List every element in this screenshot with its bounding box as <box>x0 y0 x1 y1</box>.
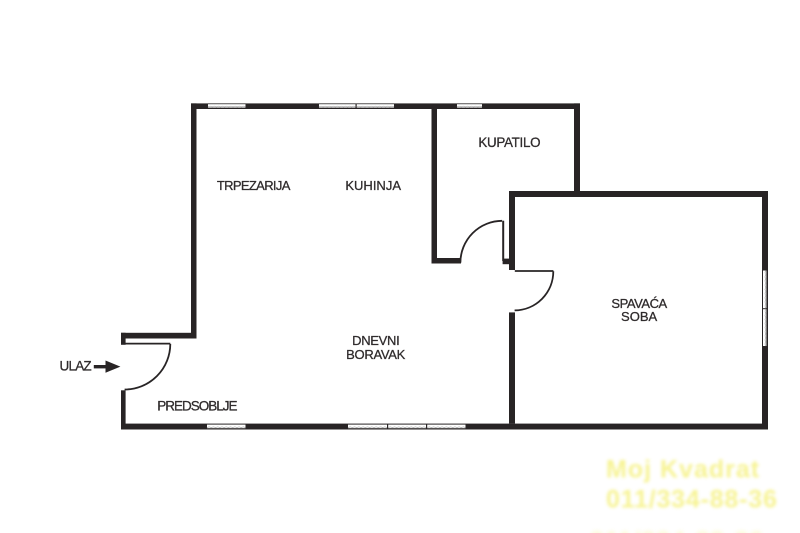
svg-text:KUPATILO: KUPATILO <box>478 135 540 150</box>
svg-text:Moj Kvadrat: Moj Kvadrat <box>606 456 760 484</box>
svg-text:011/334-88-36: 011/334-88-36 <box>606 486 778 514</box>
svg-text:KUHINJA: KUHINJA <box>345 178 401 193</box>
svg-text:TRPEZARIJA: TRPEZARIJA <box>217 178 291 193</box>
svg-text:SOBA: SOBA <box>621 309 657 324</box>
svg-text:DNEVNI: DNEVNI <box>352 333 399 348</box>
svg-text:PREDSOBLJE: PREDSOBLJE <box>157 399 237 414</box>
svg-text:ULAZ: ULAZ <box>60 359 92 374</box>
svg-text:011/334-88-36: 011/334-88-36 <box>590 527 764 533</box>
svg-text:BORAVAK: BORAVAK <box>346 347 405 362</box>
